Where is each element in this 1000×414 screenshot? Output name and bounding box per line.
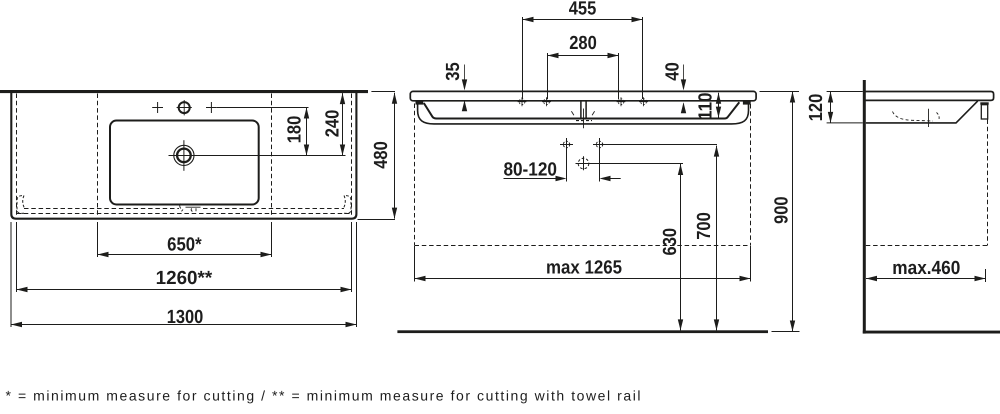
svg-text:280: 280 — [569, 33, 597, 54]
svg-text:40: 40 — [662, 62, 683, 81]
svg-text:180: 180 — [284, 116, 305, 144]
svg-text:240: 240 — [323, 110, 344, 138]
svg-text:* = minimum measure for cuttin: * = minimum measure for cutting / ** = m… — [6, 387, 641, 403]
svg-text:455: 455 — [569, 0, 597, 20]
svg-text:1260**: 1260** — [156, 268, 213, 289]
svg-text:110: 110 — [696, 92, 717, 120]
svg-text:900: 900 — [772, 196, 793, 224]
svg-text:630: 630 — [660, 228, 681, 256]
svg-text:700: 700 — [694, 212, 715, 240]
svg-text:80-120: 80-120 — [503, 160, 557, 181]
svg-text:max.460: max.460 — [892, 258, 960, 279]
svg-text:650*: 650* — [167, 234, 202, 255]
svg-text:max 1265: max 1265 — [546, 257, 622, 278]
svg-text:1300: 1300 — [167, 307, 204, 328]
svg-text:35: 35 — [443, 62, 464, 81]
svg-text:120: 120 — [806, 94, 827, 122]
svg-text:480: 480 — [371, 141, 392, 169]
